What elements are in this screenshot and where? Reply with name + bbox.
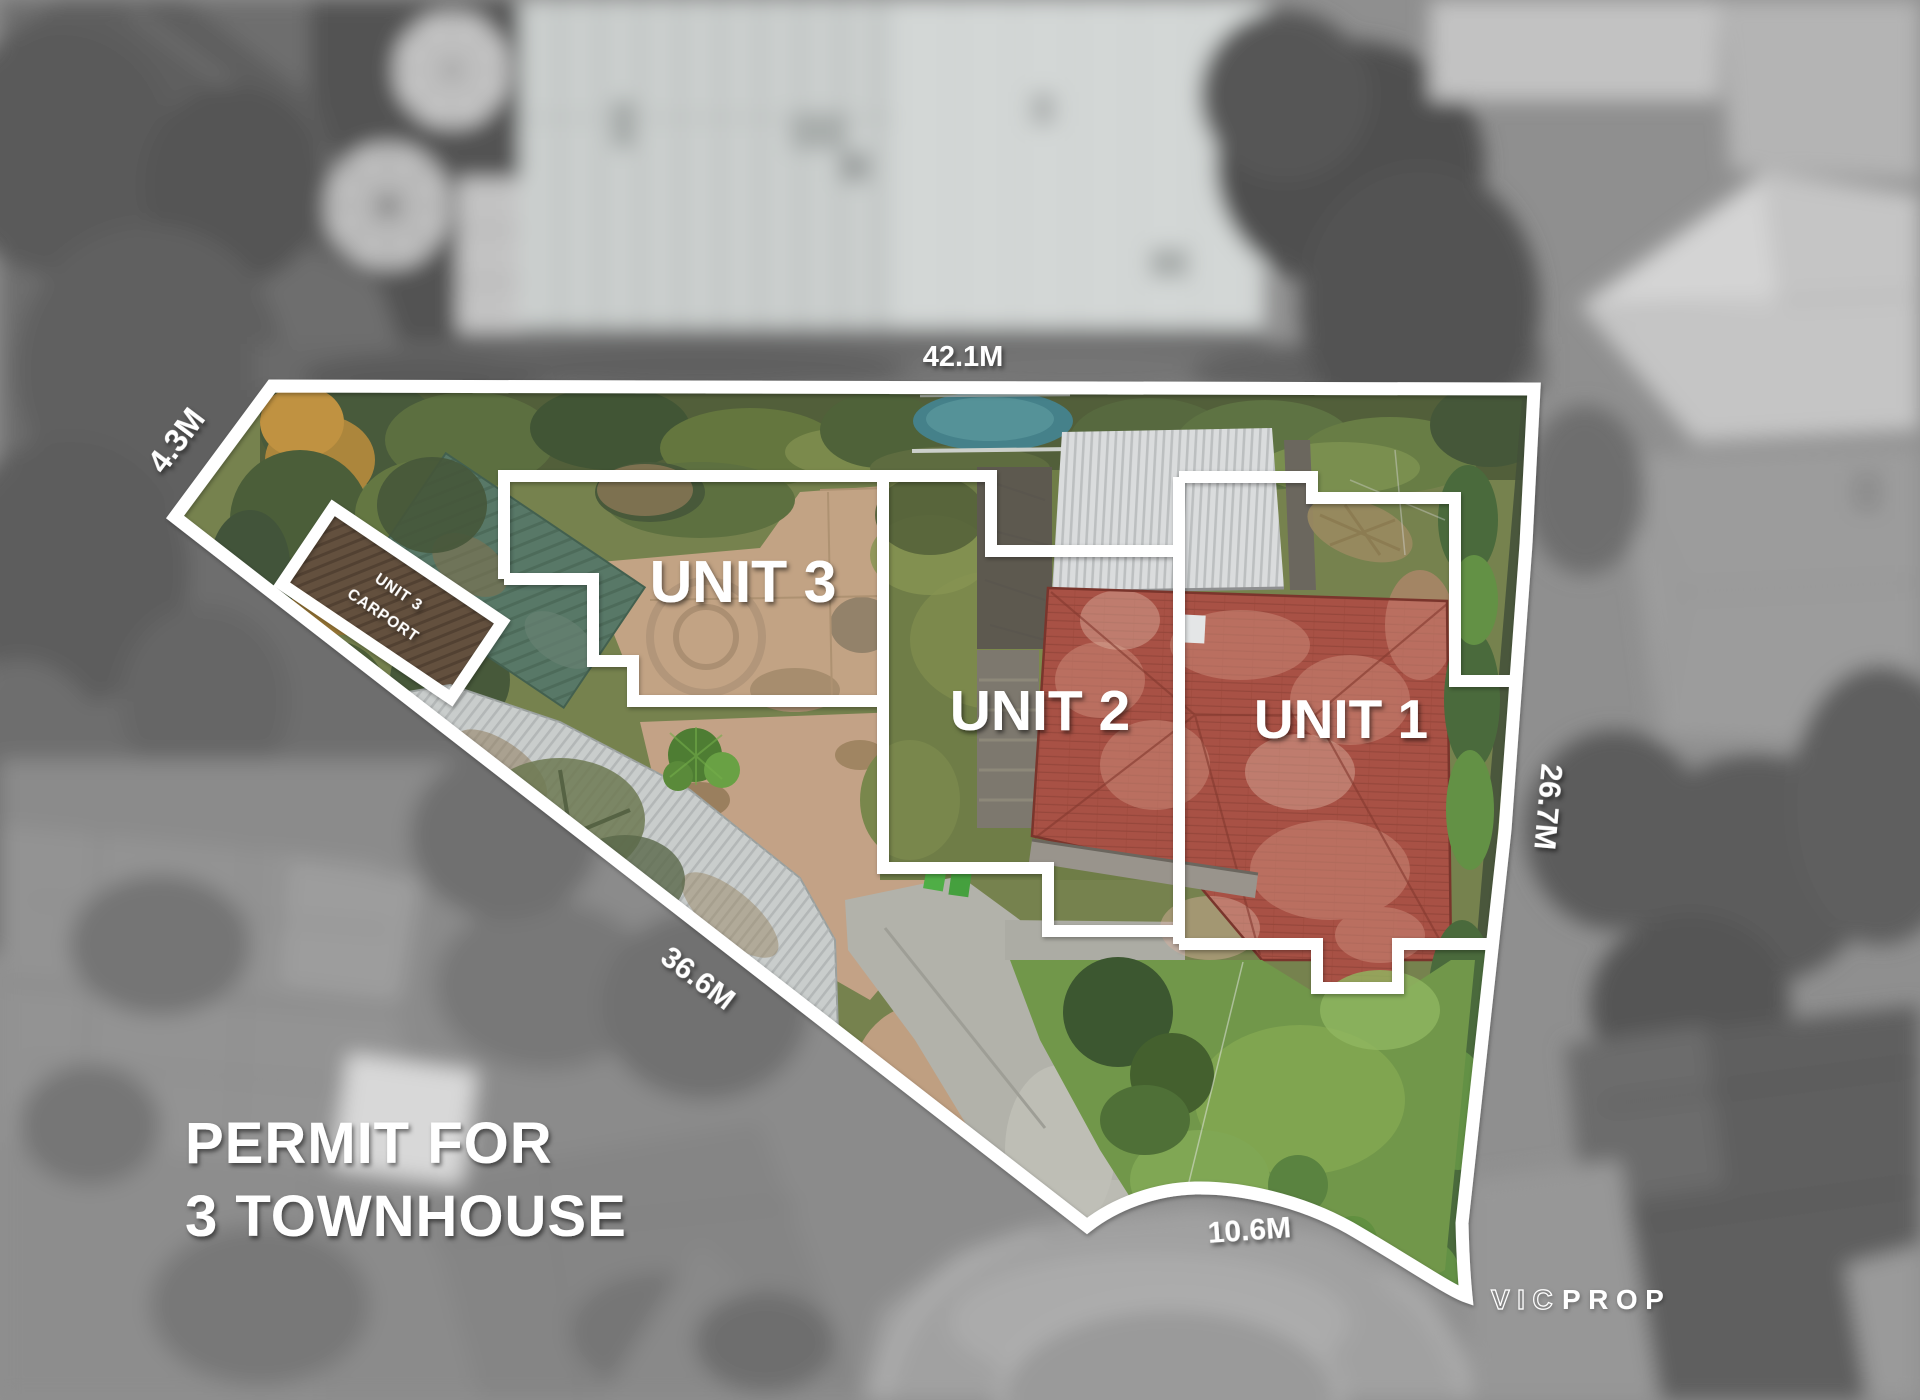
svg-text:PERMIT FOR: PERMIT FOR [185,1111,553,1176]
svg-text:UNIT 3: UNIT 3 [650,549,837,615]
svg-text:3 TOWNHOUSE: 3 TOWNHOUSE [185,1184,627,1249]
svg-text:10.6M: 10.6M [1207,1211,1292,1250]
svg-text:UNIT 2: UNIT 2 [950,679,1131,743]
svg-text:UNIT 1: UNIT 1 [1254,688,1428,750]
svg-text:VIC: VIC [1491,1284,1560,1315]
svg-text:42.1M: 42.1M [923,341,1004,373]
svg-text:26.7M: 26.7M [1527,762,1569,851]
svg-text:PROP: PROP [1562,1284,1671,1315]
